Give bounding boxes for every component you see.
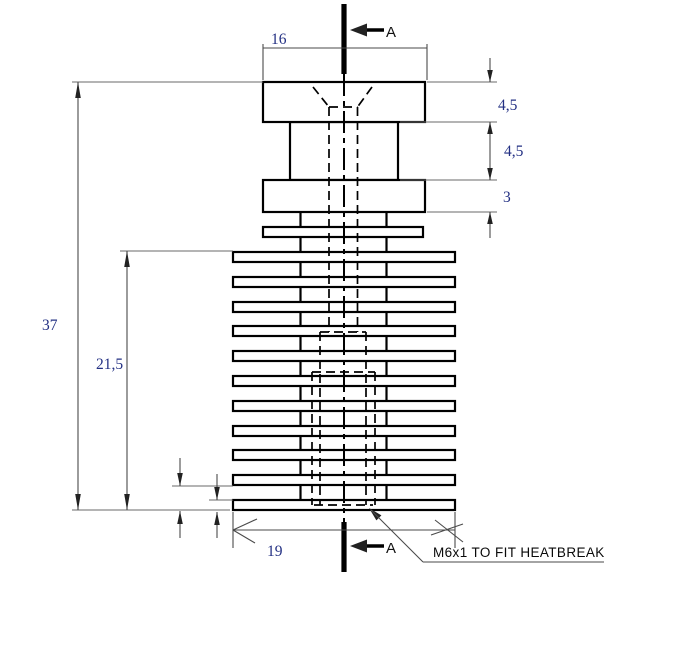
dim-value: 16 (271, 31, 287, 48)
arrow-down-icon (487, 70, 493, 82)
dim-value: 19 (267, 543, 283, 560)
dimension-fin-stack-height: 21,5 (96, 251, 233, 510)
oblique-tick (233, 519, 257, 530)
section-arrow-bottom-icon (350, 540, 367, 553)
dim-value: 37 (42, 317, 58, 334)
arrow-up-icon (214, 512, 220, 525)
dim-value: 21,5 (96, 356, 123, 373)
thread-note-leader: M6x1 TO FIT HEATBREAK (369, 508, 605, 562)
heatsink-technical-drawing: A A 16 4,5 4,5 3 37 (0, 0, 684, 659)
section-label-bottom: A (386, 540, 396, 557)
arrow-up-icon (75, 82, 81, 98)
arrow-down-icon (177, 473, 183, 486)
dimension-bottom-width: 19 (233, 512, 463, 560)
arrow-down-icon (75, 494, 81, 510)
thread-note-text: M6x1 TO FIT HEATBREAK (433, 545, 605, 560)
arrow-up-icon (124, 251, 130, 267)
arrow-up-icon (487, 212, 493, 224)
leader-line (371, 510, 423, 562)
dimension-fin-thickness (209, 474, 233, 538)
section-label-top: A (386, 24, 396, 41)
arrow-up-icon (487, 122, 493, 134)
dimension-fin-pitch (172, 458, 233, 538)
oblique-tick (435, 520, 463, 542)
drawing-canvas: A A 16 4,5 4,5 3 37 (0, 0, 684, 659)
dim-value: 4,5 (504, 143, 524, 160)
arrow-up-icon (177, 511, 183, 524)
arrow-down-icon (124, 494, 130, 510)
dim-value: 4,5 (498, 97, 518, 114)
arrow-down-icon (487, 168, 493, 180)
dim-value: 3 (503, 189, 511, 206)
arrow-down-icon (214, 487, 220, 500)
oblique-tick (233, 530, 255, 543)
dimension-overall-height: 37 (42, 82, 263, 510)
section-arrow-top-icon (350, 24, 367, 37)
